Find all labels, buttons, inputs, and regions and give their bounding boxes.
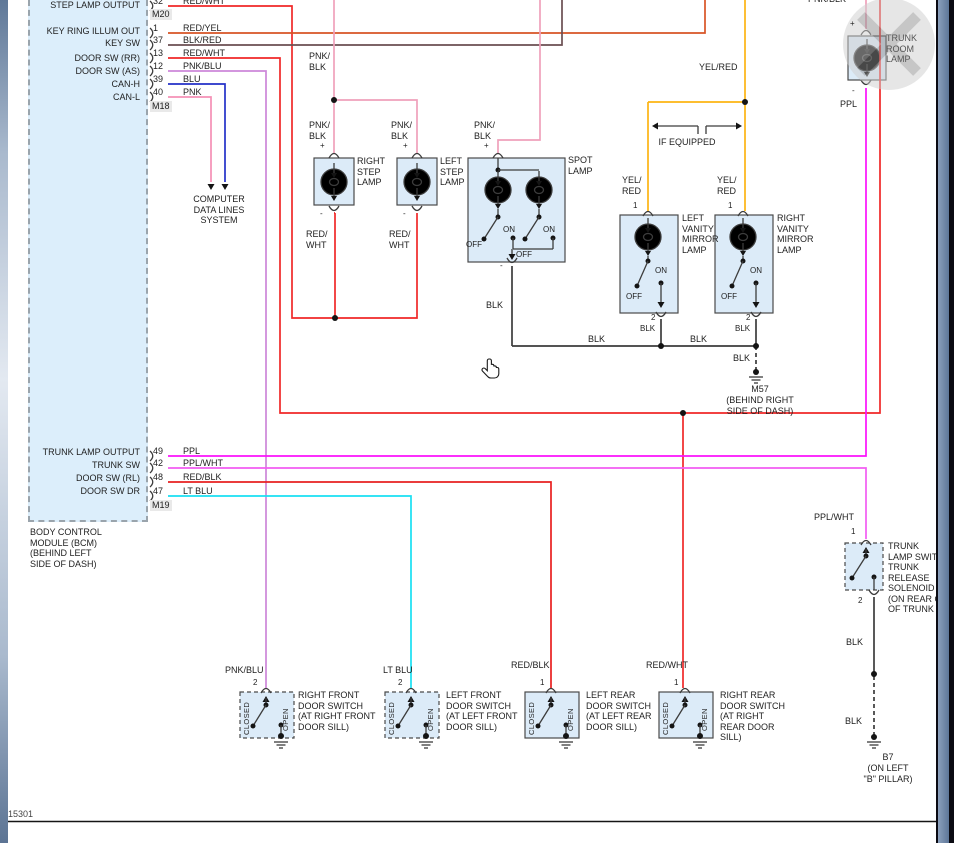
plus-trunk-lamp: + <box>850 19 855 30</box>
wire-label-pnk-blk-2: PNK/ BLK <box>309 120 330 141</box>
left-step-lamp-label: LEFT STEP LAMP <box>440 156 465 188</box>
ground-m57-location: (BEHIND RIGHT SIDE OF DASH) <box>726 395 794 416</box>
sw-rr-label: RIGHT REAR DOOR SWITCH (AT RIGHT REAR DO… <box>720 690 785 743</box>
wire-label-yel-red-r: YEL/ RED <box>717 175 737 196</box>
bcm-io-key-sw: KEY SW <box>30 38 140 49</box>
wire-label-red-wht-2: RED/ WHT <box>389 229 411 250</box>
wire-color-42: PPL/WHT <box>183 458 223 469</box>
ground-b7-location: (ON LEFT "B" PILLAR) <box>864 763 913 784</box>
trunk-lamp-switch-symbol <box>845 543 883 590</box>
sw-lf-closed: CLOSED <box>387 695 398 735</box>
bcm-io-trunk-lamp-output: TRUNK LAMP OUTPUT <box>30 447 140 458</box>
sw-rf-label: RIGHT FRONT DOOR SWITCH (AT RIGHT FRONT … <box>298 690 376 732</box>
bcm-pin-32: 32 <box>153 0 163 7</box>
bcm-pin-48: 48 <box>153 472 163 483</box>
left-vanity-off: OFF <box>626 292 642 303</box>
wire-label-pnk-blk-1: PNK/ BLK <box>309 51 330 72</box>
sw-lf-open: OPEN <box>426 695 437 731</box>
trunk-switch-pin2: 2 <box>858 596 862 607</box>
wire-color-37: BLK/RED <box>183 35 222 46</box>
connector-m18: M18 <box>150 101 172 112</box>
bcm-io-door-sw-dr: DOOR SW DR <box>30 486 140 497</box>
wires <box>168 0 880 735</box>
sw-lr-label: LEFT REAR DOOR SWITCH (AT LEFT REAR DOOR… <box>586 690 652 732</box>
wire-label-pnk-blu-sw: PNK/BLU <box>225 665 264 676</box>
ground-b7-label: B7 <box>882 752 893 763</box>
wire-label-blk-spot: BLK <box>486 300 503 311</box>
minus-right-step: - <box>320 209 323 220</box>
trunk-room-lamp-label: TRUNK ROOM LAMP <box>886 33 917 65</box>
ground-b7 <box>867 742 881 748</box>
sw-rf-open: OPEN <box>281 695 292 731</box>
trunk-switch-pin1: 1 <box>851 527 855 538</box>
mouse-cursor <box>482 359 499 378</box>
left-vanity-pin2b: 2 <box>651 313 655 324</box>
ground-m57-label: M57 <box>751 384 769 395</box>
plus-right-step: + <box>320 141 325 152</box>
wire-label-yel-red-l: YEL/ RED <box>622 175 642 196</box>
wire-label-blk-trunk1: BLK <box>846 637 863 648</box>
wire-label-yel-red-top: YEL/RED <box>699 62 738 73</box>
sw-rr-pin: 1 <box>674 678 678 689</box>
window-right-edge <box>936 0 954 843</box>
wire-label-red-wht-1: RED/ WHT <box>306 229 328 250</box>
connector-m19: M19 <box>150 500 172 511</box>
wire-label-blk-bus1: BLK <box>588 334 605 345</box>
bcm-pin-40: 40 <box>153 87 163 98</box>
right-vanity-pin1: 1 <box>728 201 732 212</box>
left-vanity-on: ON <box>655 266 667 277</box>
bcm-io-trunk-sw: TRUNK SW <box>30 460 140 471</box>
minus-spot: - <box>500 261 503 272</box>
wire-label-ppl: PPL <box>840 99 857 110</box>
spot-on-1: ON <box>503 225 515 236</box>
spot-lamp-symbol <box>468 158 565 262</box>
computer-data-lines-label: COMPUTER DATA LINES SYSTEM <box>193 194 245 226</box>
ground-m57 <box>749 377 763 383</box>
bcm-pin-37: 37 <box>153 35 163 46</box>
right-step-lamp-label: RIGHT STEP LAMP <box>357 156 385 188</box>
wire-label-lt-blu-sw: LT BLU <box>383 665 413 676</box>
wire-color-49: PPL <box>183 446 200 457</box>
sw-lf-label: LEFT FRONT DOOR SWITCH (AT LEFT FRONT DO… <box>446 690 518 732</box>
sw-rf-pin: 2 <box>253 678 257 689</box>
bcm-io-door-sw-rl: DOOR SW (RL) <box>30 473 140 484</box>
right-vanity-blk: BLK <box>735 324 750 335</box>
minus-trunk-lamp: - <box>852 86 855 97</box>
wire-label-pnk-blk-trunk: PNK/BLK <box>808 0 846 5</box>
bcm-pin-13: 13 <box>153 48 163 59</box>
wire-label-blk-m57: BLK <box>733 353 750 364</box>
bcm-pin-42: 42 <box>153 458 163 469</box>
bcm-pin-49: 49 <box>153 446 163 457</box>
right-vanity-on: ON <box>750 266 762 277</box>
wire-label-pnk-blk-4: PNK/ BLK <box>474 120 495 141</box>
sw-lr-pin: 1 <box>540 678 544 689</box>
spot-off-1: OFF <box>466 240 482 251</box>
spot-on-2: ON <box>543 225 555 236</box>
bcm-io-can-l: CAN-L <box>30 92 140 103</box>
left-vanity-pin1: 1 <box>633 201 637 212</box>
right-vanity-off: OFF <box>721 292 737 303</box>
bcm-pin-39: 39 <box>153 74 163 85</box>
bcm-pin-47: 47 <box>153 486 163 497</box>
plus-spot: + <box>484 141 489 152</box>
sw-lf-pin: 2 <box>398 678 402 689</box>
if-equipped-label: IF EQUIPPED <box>658 137 715 148</box>
sw-rr-open: OPEN <box>700 695 711 731</box>
wire-color-1: RED/YEL <box>183 23 222 34</box>
wire-color-13: RED/WHT <box>183 48 225 59</box>
wire-color-47: LT BLU <box>183 486 213 497</box>
wire-color-39: BLU <box>183 74 201 85</box>
bcm-io-can-h: CAN-H <box>30 79 140 90</box>
bcm-io-door-sw-rr: DOOR SW (RR) <box>30 53 140 64</box>
left-vanity-blk: BLK <box>640 324 655 335</box>
spot-off-2: OFF <box>516 250 532 261</box>
wire-label-ppl-wht: PPL/WHT <box>814 512 854 523</box>
sw-rf-closed: CLOSED <box>242 695 253 735</box>
if-equipped-arrows <box>652 123 742 135</box>
bcm-pin-12: 12 <box>153 61 163 72</box>
bcm-io-key-ring-illum: KEY RING ILLUM OUT <box>30 26 140 37</box>
sw-lr-closed: CLOSED <box>527 695 538 735</box>
plus-left-step: + <box>403 141 408 152</box>
wire-label-blk-trunk2: BLK <box>845 716 862 727</box>
wire-color-48: RED/BLK <box>183 472 222 483</box>
wire-color-12: PNK/BLU <box>183 61 222 72</box>
spot-lamp-label: SPOT LAMP <box>568 155 593 176</box>
bcm-io-step-lamp-output: STEP LAMP OUTPUT <box>30 0 140 11</box>
bcm-io-door-sw-as: DOOR SW (AS) <box>30 66 140 77</box>
window-left-edge <box>0 0 8 843</box>
right-step-lamp-symbol <box>314 158 354 205</box>
computer-data-lines-arrows <box>208 184 229 190</box>
minus-left-step: - <box>403 209 406 220</box>
wire-label-blk-bus2: BLK <box>690 334 707 345</box>
trunk-switch-label: TRUNK LAMP SWIT TRUNK RELEASE SOLENOID (… <box>888 541 942 615</box>
wiring-diagram-page: STEP LAMP OUTPUT KEY RING ILLUM OUT KEY … <box>0 0 954 843</box>
bcm-pin-1: 1 <box>153 23 158 34</box>
left-step-lamp-symbol <box>397 158 437 205</box>
sw-rr-closed: CLOSED <box>661 695 672 735</box>
wire-color-40: PNK <box>183 87 202 98</box>
wire-label-red-wht-sw: RED/WHT <box>646 660 688 671</box>
wire-color-32: RED/WHT <box>183 0 225 7</box>
connector-m20: M20 <box>150 9 172 20</box>
left-vanity-label: LEFT VANITY MIRROR LAMP <box>682 213 719 255</box>
right-vanity-label: RIGHT VANITY MIRROR LAMP <box>777 213 814 255</box>
wire-label-pnk-blk-3: PNK/ BLK <box>391 120 412 141</box>
wire-label-red-blk-sw: RED/BLK <box>511 660 550 671</box>
bcm-name: BODY CONTROL MODULE (BCM) (BEHIND LEFT S… <box>30 527 102 569</box>
sw-lr-open: OPEN <box>566 695 577 731</box>
right-vanity-pin2: 2 <box>746 313 750 324</box>
